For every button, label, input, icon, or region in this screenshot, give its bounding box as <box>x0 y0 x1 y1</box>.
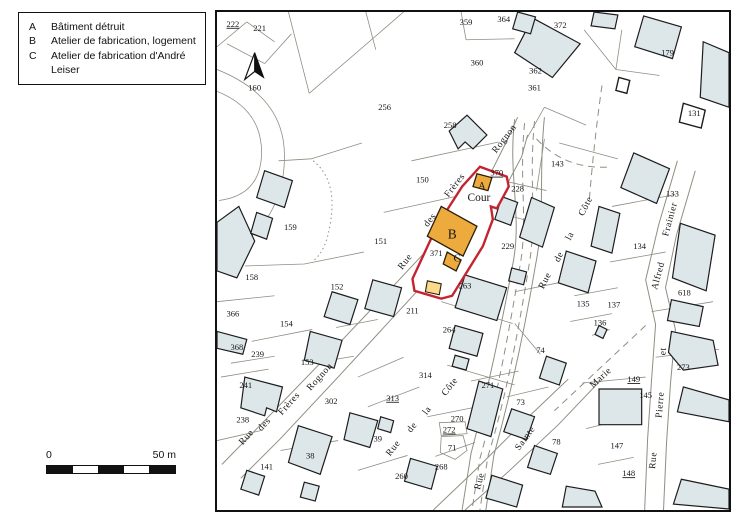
building-letter-label: Cour <box>468 192 491 204</box>
street-name-label: la <box>564 230 577 242</box>
parcel-number-label: 229 <box>501 241 514 251</box>
parcel-number-label: 370 <box>490 168 503 178</box>
parcel-number-label: 179 <box>661 48 674 58</box>
building <box>520 198 555 248</box>
street-name-label: Rue <box>396 252 414 272</box>
street-name-label: et <box>658 347 669 356</box>
street-name-label: Marie <box>588 366 614 391</box>
building <box>668 331 718 370</box>
parcel-number-label: 137 <box>608 300 622 310</box>
building <box>324 292 358 325</box>
parcel-number-label: 158 <box>245 272 258 282</box>
parcel-number-label: 147 <box>610 440 624 450</box>
parcel-number-label: 302 <box>325 396 338 406</box>
building <box>378 417 394 433</box>
building <box>405 458 438 489</box>
parcel-number-label: 362 <box>529 65 542 75</box>
legend: A Bâtiment détruit B Atelier de fabricat… <box>18 12 206 85</box>
legend-label: Atelier de fabrication d'André Leiser <box>51 49 197 78</box>
parcel-number-label: 366 <box>226 309 239 319</box>
parcel-number-label: 272 <box>443 425 456 435</box>
scale-start-label: 0 <box>46 449 52 461</box>
street-name-label: Rognon <box>491 123 520 156</box>
parcel-number-label: 618 <box>678 288 691 298</box>
building-road-outline <box>616 77 630 93</box>
parcel-number-label: 145 <box>639 390 652 400</box>
street-name-label: Pierre <box>655 391 667 418</box>
street-name-label: Rue <box>237 428 256 447</box>
cadastral-map: 2222213593643723603623611791311602562581… <box>217 12 729 510</box>
legend-key: B <box>29 34 51 48</box>
parcel-number-label: 154 <box>280 318 294 328</box>
street-name-label: Côte <box>577 195 595 218</box>
parcel-number-label: 74 <box>536 345 545 355</box>
building <box>513 12 536 34</box>
parcel-number-label: 368 <box>230 342 243 352</box>
parcel-number-label: 314 <box>419 370 433 380</box>
building <box>251 212 273 239</box>
scale-bar-segments <box>46 465 176 474</box>
parcel-number-label: 131 <box>688 108 701 118</box>
parcel-number-label: 221 <box>253 23 266 33</box>
building <box>452 355 469 370</box>
legend-label: Bâtiment détruit <box>51 20 197 34</box>
street-name-label: de <box>406 421 420 435</box>
building <box>486 475 523 507</box>
scale-bar: 0 50 m <box>46 449 176 474</box>
street-name-label: Rue <box>385 439 403 459</box>
parcel-number-label: 359 <box>460 17 473 27</box>
parcel-number-label: 271 <box>481 380 494 390</box>
parcel-number-label: 150 <box>416 175 429 185</box>
parcel-number-label: 313 <box>386 393 399 403</box>
parcel-number-label: 133 <box>666 188 679 198</box>
building <box>509 268 527 285</box>
street-name-label: Côte <box>440 376 460 398</box>
parcel-number-label: 135 <box>577 299 590 309</box>
parcel-number-label: 38 <box>306 450 315 460</box>
parcel-number-label: 141 <box>260 461 273 471</box>
parcel-number-label: 222 <box>226 19 239 29</box>
building <box>700 42 729 107</box>
parcel-number-label: 78 <box>552 436 561 446</box>
parcel-number-label: 256 <box>378 102 391 112</box>
parcel-number-label: 260 <box>395 471 408 481</box>
building <box>591 206 620 253</box>
parcel-number-label: 152 <box>331 282 344 292</box>
building <box>257 171 293 208</box>
legend-item-b: B Atelier de fabrication, logement <box>29 34 197 48</box>
parcel-number-label: 239 <box>251 349 264 359</box>
parcel-number-label: 151 <box>374 236 387 246</box>
parcel-number-label: 71 <box>448 442 457 452</box>
street-name-label: Alfred <box>649 261 667 291</box>
building-c-annex <box>425 281 441 295</box>
parcel-number-label: 258 <box>444 120 457 130</box>
parcel-number-label: 153 <box>301 357 314 367</box>
parcel-number-label: 268 <box>435 461 448 471</box>
building <box>677 387 729 422</box>
street-name-label: la <box>421 405 434 418</box>
parcel-number-label: 241 <box>239 380 252 390</box>
building <box>635 16 682 59</box>
map-frame: 2222213593643723603623611791311602562581… <box>215 10 731 512</box>
parcel-number-label: 211 <box>406 306 418 316</box>
parcel-number-label: 228 <box>511 184 524 194</box>
parcel-number-label: 364 <box>497 14 511 24</box>
parcel-number-label: 263 <box>459 281 472 291</box>
building <box>672 223 715 290</box>
parcel-number-label: 134 <box>633 241 647 251</box>
building <box>667 300 703 327</box>
legend-label: Atelier de fabrication, logement <box>51 34 197 48</box>
legend-key: C <box>29 49 51 78</box>
building <box>599 389 642 425</box>
building-letter-label: A <box>479 182 486 192</box>
building <box>621 153 670 204</box>
parcel-number-label: 371 <box>430 248 443 258</box>
building <box>300 482 319 501</box>
scale-end-label: 50 m <box>153 449 176 461</box>
parcel-number-label: 148 <box>622 468 635 478</box>
parcel-number-label: 143 <box>551 159 564 169</box>
parcel-number-label: 361 <box>528 82 541 92</box>
street-name-label: Rue <box>648 451 659 469</box>
figure-page: A Bâtiment détruit B Atelier de fabricat… <box>0 0 738 522</box>
parcel-number-label: 159 <box>284 222 297 232</box>
building <box>673 479 729 509</box>
parcel-number-label: 160 <box>248 82 261 92</box>
parcel-number-label: 149 <box>627 374 640 384</box>
building <box>217 206 255 277</box>
building <box>365 280 402 317</box>
street-name-label: Rue <box>473 472 487 491</box>
building <box>591 12 618 29</box>
parcel-number-label: 264 <box>443 324 457 334</box>
parcel-number-label: 360 <box>471 58 484 68</box>
building-letter-label: C <box>453 253 460 265</box>
legend-key: A <box>29 20 51 34</box>
parcel-number-label: 238 <box>236 415 249 425</box>
building <box>539 356 566 385</box>
legend-item-c: C Atelier de fabrication d'André Leiser <box>29 49 197 78</box>
building <box>562 486 602 507</box>
parcel-number-label: 372 <box>554 20 567 30</box>
parcel-number-label: 136 <box>594 317 607 327</box>
street-name-label: Rue <box>537 271 554 291</box>
parcel-number-label: 270 <box>451 414 464 424</box>
legend-item-a: A Bâtiment détruit <box>29 20 197 34</box>
parcel-number-label: 273 <box>677 362 690 372</box>
parcel-number-label: 73 <box>516 397 525 407</box>
parcel-number-label: 39 <box>373 434 382 444</box>
north-arrow-icon <box>245 53 264 80</box>
building-letter-label: B <box>448 226 457 241</box>
